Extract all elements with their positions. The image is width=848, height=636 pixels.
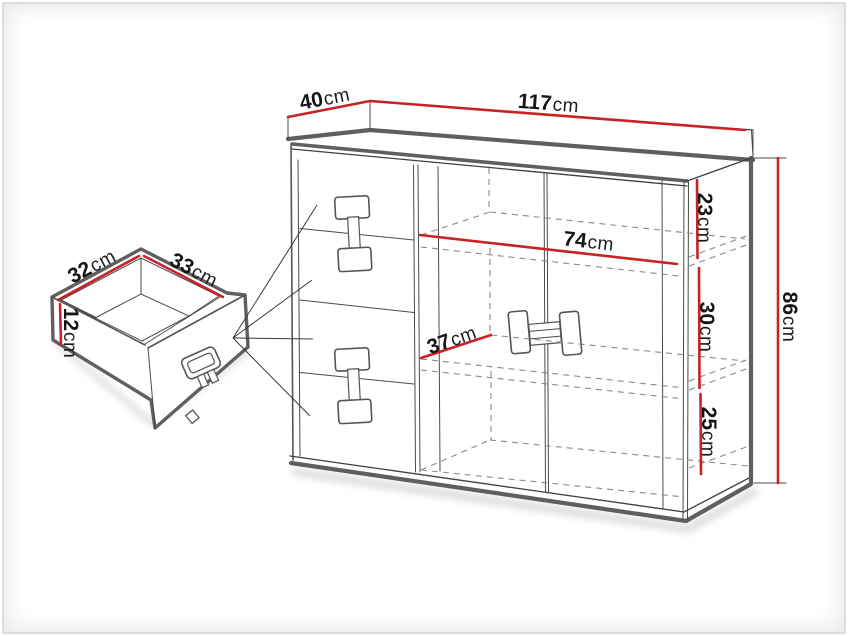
dim-label-section-middle: 30cm (695, 302, 718, 353)
dim-label-section-top: 23cm (693, 193, 716, 244)
handle-plate (338, 399, 372, 424)
handle-stem (348, 217, 361, 250)
handle-stem (348, 369, 361, 402)
furniture-diagram: 40cm 117cm 23cm 30cm 25cm 86cm 74cm 37cm… (0, 0, 848, 636)
dim-label-total-height: 86cm (778, 292, 801, 343)
dim-label-drawer-height: 12cm (59, 308, 82, 359)
cabinet (288, 101, 753, 521)
handle-plate (335, 348, 370, 372)
door-handle-right-plate (559, 311, 582, 355)
door-handle-left-plate (508, 310, 531, 353)
door-handle-bar (529, 322, 562, 346)
handle-plate (338, 247, 372, 272)
panel-bottom-notch (186, 410, 199, 423)
dim-label-top-width: 117cm (517, 90, 580, 118)
handle-plate (335, 196, 370, 220)
diagram-canvas: 40cm 117cm 23cm 30cm 25cm 86cm 74cm 37cm… (0, 0, 848, 636)
dim-label-section-bottom: 25cm (697, 407, 720, 458)
